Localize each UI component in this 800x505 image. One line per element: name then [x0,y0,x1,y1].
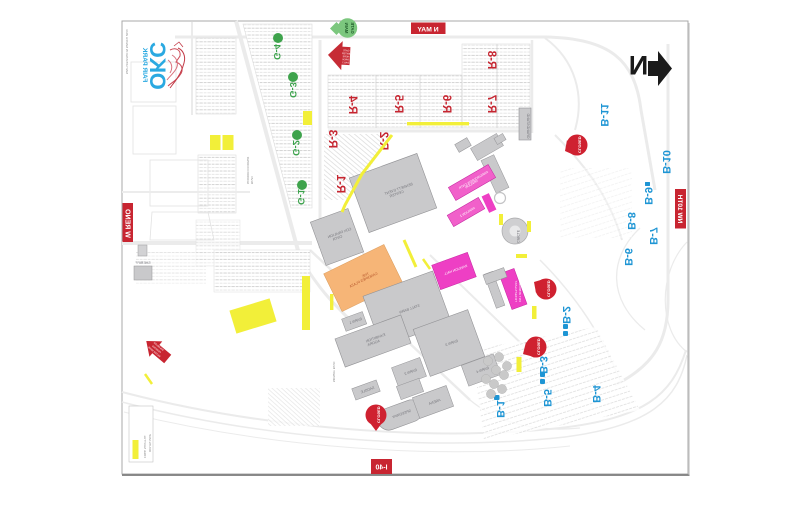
svg-text:B-11: B-11 [598,103,610,126]
svg-text:B-8: B-8 [625,212,637,230]
svg-text:I-40: I-40 [375,465,387,472]
svg-text:GORDON COOPER: GORDON COOPER [246,156,250,184]
svg-text:ROUTE MAP: ROUTE MAP [148,434,152,452]
svg-text:B-1: B-1 [494,400,506,418]
svg-text:R-3: R-3 [326,130,338,149]
svg-text:FREE SHUTTLE: FREE SHUTTLE [143,435,147,458]
svg-text:G-1: G-1 [295,188,306,205]
svg-text:CLOSED: CLOSED [377,406,382,423]
svg-text:R-5: R-5 [392,94,404,113]
svg-text:MAIN: MAIN [344,23,349,34]
svg-text:GRANDSTAND: GRANDSTAND [526,113,530,138]
svg-text:B-2: B-2 [560,306,572,324]
svg-text:G-2: G-2 [290,140,301,156]
svg-text:B-4: B-4 [590,384,602,403]
svg-text:R-7: R-7 [485,95,497,114]
svg-text:W RENO: W RENO [124,209,131,238]
svg-text:GATE: GATE [350,22,355,34]
svg-text:MAP UPDATED IN MARCH 2023: MAP UPDATED IN MARCH 2023 [125,29,129,74]
svg-text:BLVD: BLVD [250,176,254,184]
svg-text:CIRCLE: CIRCLE [516,229,520,243]
svg-text:R-8: R-8 [485,50,497,69]
svg-text:G-3: G-3 [287,82,298,98]
svg-text:CLOSED: CLOSED [547,280,552,297]
svg-text:CLOSED: CLOSED [578,136,583,153]
svg-text:N MAY: N MAY [417,27,439,34]
svg-text:N: N [629,51,649,81]
svg-text:NW 10TH: NW 10TH [676,194,683,223]
svg-text:B-9: B-9 [642,187,654,205]
svg-text:B-6: B-6 [622,248,634,266]
svg-text:R-4: R-4 [346,95,358,114]
svg-text:MIDWAY BLVD: MIDWAY BLVD [332,361,336,382]
svg-text:G-4: G-4 [271,43,282,60]
svg-text:R-1: R-1 [334,174,346,193]
svg-text:TICKETS EAST: TICKETS EAST [514,280,518,302]
svg-text:FAIR PARK: FAIR PARK [141,47,148,82]
svg-text:SHERIFF: SHERIFF [135,261,151,265]
svg-text:B-10: B-10 [660,150,672,174]
svg-text:B-3: B-3 [537,356,549,374]
svg-text:B-7: B-7 [647,227,659,245]
svg-text:B-5: B-5 [541,389,553,407]
svg-text:CNT W BOXES: CNT W BOXES [518,281,522,302]
svg-text:CLOSED: CLOSED [537,338,542,355]
svg-text:DAILY: DAILY [342,61,350,64]
svg-text:R-6: R-6 [440,95,452,114]
